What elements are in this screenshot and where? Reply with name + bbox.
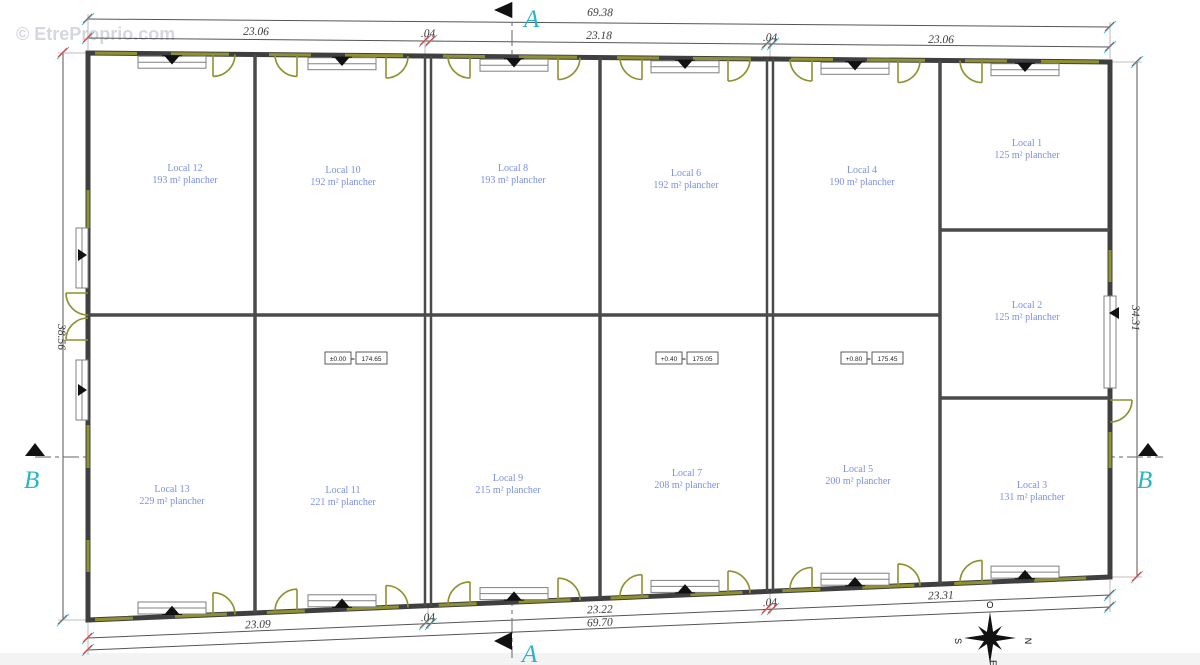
level-altitude: 175.05 bbox=[693, 356, 713, 363]
compass-west-label: O bbox=[986, 600, 993, 610]
dim-bottom-total: 69.70 bbox=[587, 616, 614, 629]
svg-text:Local 6: Local 6 bbox=[671, 168, 701, 179]
svg-text:Local 3: Local 3 bbox=[1017, 480, 1047, 491]
compass-south-label: S bbox=[953, 638, 963, 644]
svg-text:Local 5: Local 5 bbox=[843, 464, 873, 475]
svg-text:215 m² plancher: 215 m² plancher bbox=[475, 485, 541, 496]
dim-top-gap2: .04 bbox=[763, 32, 778, 44]
level-altitude: 175.45 bbox=[878, 356, 898, 363]
level-marker: +0.40 = 175.05 bbox=[656, 352, 718, 364]
level-relative: +0.40 bbox=[661, 356, 678, 363]
floor-plan-drawing: © EtreProprio.com 69.38 23.06 .04 23.18 bbox=[0, 0, 1200, 665]
dim-bottom-gap2: .04 bbox=[762, 597, 777, 610]
dim-top-seg2: 23.18 bbox=[586, 30, 612, 42]
svg-text:200 m² plancher: 200 m² plancher bbox=[825, 476, 891, 487]
dim-top-total: 69.38 bbox=[587, 7, 613, 19]
svg-text:131 m² plancher: 131 m² plancher bbox=[999, 492, 1065, 503]
compass-east-label: E bbox=[988, 660, 998, 665]
svg-text:208 m² plancher: 208 m² plancher bbox=[654, 480, 720, 491]
level-relative: ±0.00 bbox=[330, 356, 347, 363]
svg-text:Local 2: Local 2 bbox=[1012, 300, 1042, 311]
section-arrow-b-right bbox=[1138, 443, 1158, 456]
svg-text:229 m² plancher: 229 m² plancher bbox=[139, 496, 205, 507]
svg-text:221 m² plancher: 221 m² plancher bbox=[310, 497, 376, 508]
svg-text:Local 4: Local 4 bbox=[847, 165, 877, 176]
svg-text:Local 11: Local 11 bbox=[326, 485, 361, 496]
svg-text:192 m² plancher: 192 m² plancher bbox=[653, 180, 719, 191]
section-label-b-left: B bbox=[24, 467, 39, 494]
svg-text:Local 7: Local 7 bbox=[672, 468, 702, 479]
dim-left: 38.56 bbox=[55, 323, 67, 350]
dim-bottom-seg3: 23.31 bbox=[928, 589, 954, 602]
equals-sign: = bbox=[351, 356, 355, 363]
dim-right: 34.31 bbox=[1129, 304, 1141, 331]
svg-text:192 m² plancher: 192 m² plancher bbox=[310, 177, 376, 188]
svg-text:Local 8: Local 8 bbox=[498, 163, 528, 174]
level-relative: +0.80 bbox=[846, 356, 863, 363]
svg-text:125 m² plancher: 125 m² plancher bbox=[994, 312, 1060, 323]
svg-text:193 m² plancher: 193 m² plancher bbox=[152, 175, 218, 186]
section-arrow-a-bottom bbox=[494, 632, 512, 650]
dim-top-gap1: .04 bbox=[421, 28, 436, 40]
compass-north-label: N bbox=[1023, 638, 1033, 645]
section-arrow-a-top bbox=[494, 2, 512, 18]
svg-text:Local 9: Local 9 bbox=[493, 473, 523, 484]
svg-text:Local 10: Local 10 bbox=[325, 165, 360, 176]
equals-sign: = bbox=[867, 356, 871, 363]
dim-bottom-seg1: 23.09 bbox=[245, 618, 272, 631]
equals-sign: = bbox=[682, 356, 686, 363]
section-label-b-right: B bbox=[1137, 467, 1152, 494]
dim-top-seg3: 23.06 bbox=[928, 34, 954, 46]
level-altitude: 174.65 bbox=[362, 356, 382, 363]
watermark: © EtreProprio.com bbox=[16, 24, 175, 44]
section-label-a-top: A bbox=[522, 6, 540, 33]
svg-text:Local 13: Local 13 bbox=[154, 484, 189, 495]
dim-bottom-seg2: 23.22 bbox=[587, 603, 614, 616]
svg-text:193 m² plancher: 193 m² plancher bbox=[480, 175, 546, 186]
level-marker: ±0.00 = 174.65 bbox=[325, 352, 387, 364]
svg-text:190 m² plancher: 190 m² plancher bbox=[829, 177, 895, 188]
dim-bottom-gap1: .04 bbox=[420, 612, 435, 625]
svg-text:Local 12: Local 12 bbox=[167, 163, 202, 174]
svg-text:Local 1: Local 1 bbox=[1012, 138, 1042, 149]
level-marker: +0.80 = 175.45 bbox=[841, 352, 903, 364]
section-label-a-bottom: A bbox=[520, 641, 538, 665]
floor-plan-page: © EtreProprio.com 69.38 23.06 .04 23.18 bbox=[0, 0, 1200, 665]
svg-text:125 m² plancher: 125 m² plancher bbox=[994, 150, 1060, 161]
dim-top-seg1: 23.06 bbox=[243, 26, 269, 38]
dim-line-top-total bbox=[88, 19, 1110, 27]
section-arrow-b-left bbox=[25, 443, 45, 456]
page-band bbox=[0, 653, 1200, 665]
